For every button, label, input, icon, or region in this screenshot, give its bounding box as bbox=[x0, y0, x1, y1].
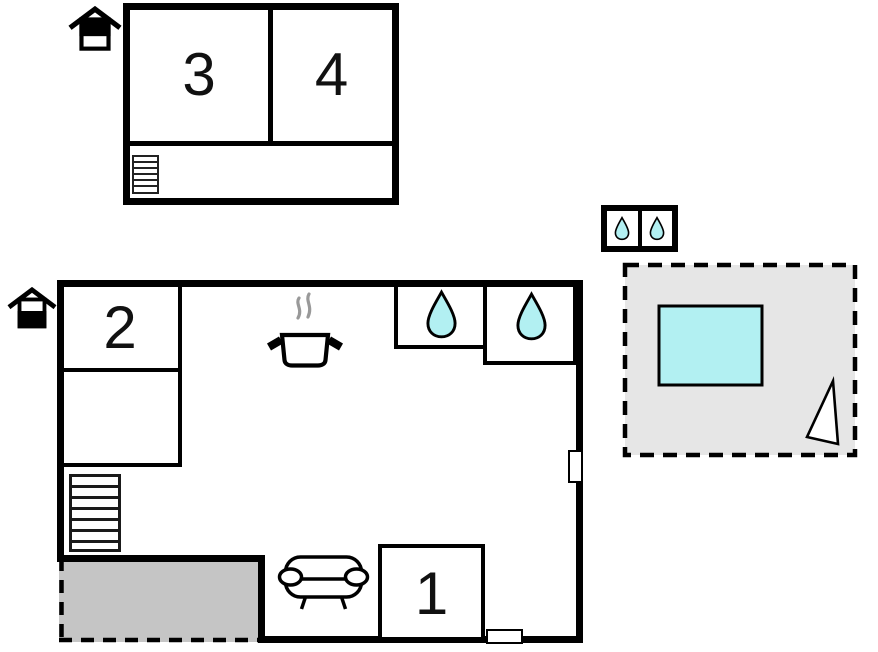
pot-body bbox=[282, 335, 328, 366]
upper-corridor-divider bbox=[128, 141, 394, 146]
lower-band bbox=[20, 313, 45, 326]
ground-level-house-icon bbox=[5, 287, 59, 335]
upper-staircase-icon bbox=[132, 155, 159, 194]
water-drop-icon bbox=[649, 215, 665, 242]
shower-annex bbox=[601, 205, 678, 252]
main-staircase-icon bbox=[69, 474, 121, 552]
floor-plan: 3 4 bbox=[0, 0, 878, 652]
room-4-label: 4 bbox=[271, 45, 392, 105]
partition-storage-bottom bbox=[64, 463, 182, 467]
upper-level-house-icon bbox=[66, 6, 124, 58]
water-drop-icon bbox=[515, 291, 548, 342]
water-drop-icon bbox=[614, 215, 630, 242]
window-right-wall bbox=[568, 450, 583, 483]
covered-patio bbox=[55, 552, 267, 652]
sofa-icon bbox=[277, 549, 370, 611]
steam-lines bbox=[298, 294, 310, 318]
water-drop-icon bbox=[425, 289, 458, 340]
terrace-area bbox=[619, 259, 861, 461]
pool-icon bbox=[659, 306, 762, 385]
room-1-label: 1 bbox=[380, 564, 483, 624]
wall-patio-top bbox=[57, 555, 265, 562]
sofa-legs bbox=[302, 597, 346, 609]
partition-room2-bottom bbox=[64, 368, 182, 372]
shower-cell bbox=[638, 211, 673, 246]
patio-fill bbox=[59, 558, 260, 642]
room-3-label: 3 bbox=[130, 45, 268, 105]
wall-patio-right bbox=[258, 555, 265, 643]
shower-cell bbox=[607, 211, 638, 246]
upper-band-outline bbox=[81, 20, 108, 35]
kitchen-pot-icon bbox=[263, 289, 347, 369]
room-2-label: 2 bbox=[61, 298, 179, 358]
window-bottom-wall bbox=[486, 629, 523, 644]
